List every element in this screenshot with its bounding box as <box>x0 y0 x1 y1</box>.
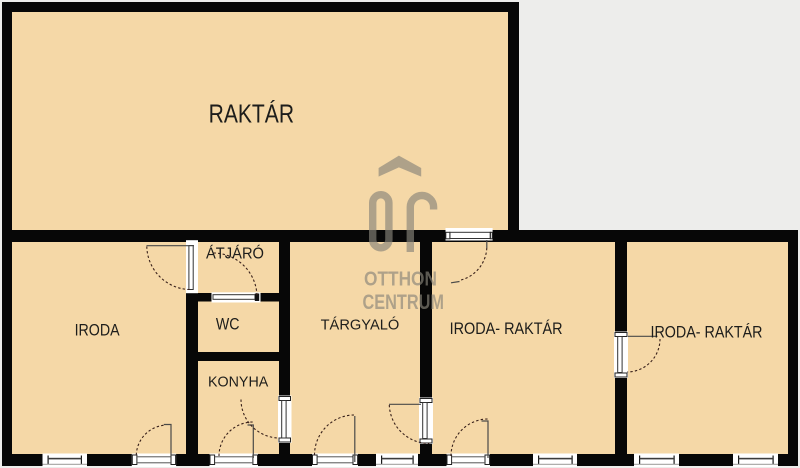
svg-text:OTTHON: OTTHON <box>364 268 437 290</box>
svg-text:KONYHA: KONYHA <box>208 373 268 390</box>
svg-text:WC: WC <box>216 316 240 334</box>
svg-text:IRODA- RAKTÁR: IRODA- RAKTÁR <box>651 322 763 341</box>
svg-text:IRODA- RAKTÁR: IRODA- RAKTÁR <box>450 319 563 338</box>
svg-text:CENTRUM: CENTRUM <box>363 291 445 314</box>
svg-text:ÁTJÁRÓ: ÁTJÁRÓ <box>206 246 264 263</box>
svg-text:IRODA: IRODA <box>75 321 121 340</box>
svg-text:RAKTÁR: RAKTÁR <box>209 100 295 129</box>
svg-text:TÁRGYALÓ: TÁRGYALÓ <box>321 316 400 333</box>
